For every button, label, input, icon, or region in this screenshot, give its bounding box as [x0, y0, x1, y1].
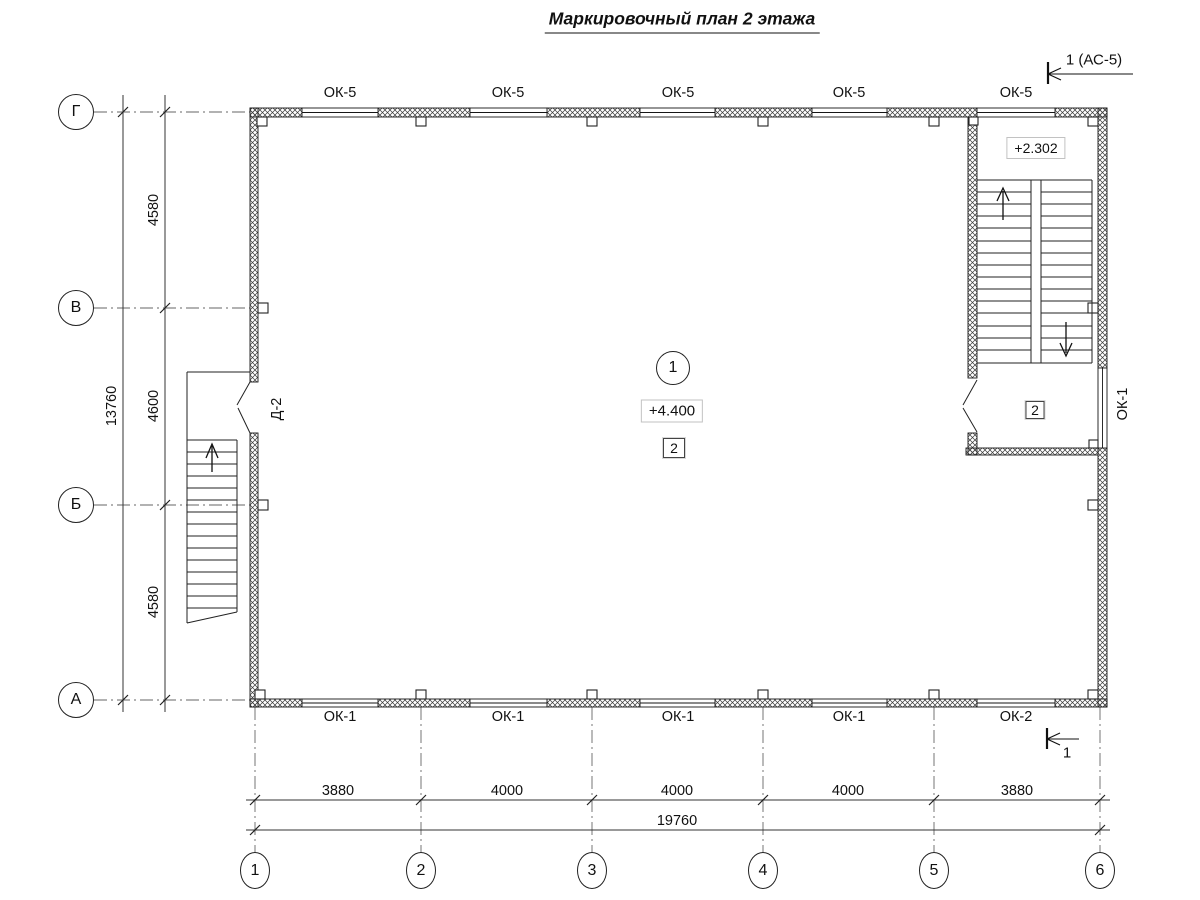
window-label-top-4: ОК-5	[833, 86, 866, 101]
section-label-bottom: 1	[1063, 746, 1071, 761]
axis-label: В	[71, 299, 82, 317]
dim-left-seg-1: 4580	[147, 194, 162, 226]
dim-left-total: 13760	[105, 386, 120, 426]
dim-bottom-seg-1: 3880	[322, 784, 354, 799]
axis-bubble-col-5: 5	[919, 852, 949, 889]
axis-bubble-row-a: А	[58, 682, 94, 718]
dim-bottom-seg-3: 4000	[661, 784, 693, 799]
axis-label: А	[71, 691, 82, 709]
axis-bubble-row-b: Б	[58, 487, 94, 523]
window-label-bottom-3: ОК-1	[662, 710, 695, 725]
room-number: 1	[669, 359, 678, 377]
section-label-top: 1 (АС-5)	[1066, 53, 1122, 68]
axis-label: 5	[930, 862, 939, 880]
window-label-top-1: ОК-5	[324, 86, 357, 101]
stairwell-door-swing	[963, 380, 977, 432]
room-level-mark: +4.400	[641, 400, 703, 423]
axis-bubble-col-4: 4	[748, 852, 778, 889]
axis-bubble-col-6: 6	[1085, 852, 1115, 889]
dim-bottom-total: 19760	[657, 814, 697, 829]
axis-label: 2	[417, 862, 426, 880]
room-number-bubble: 1	[656, 351, 690, 385]
window-label-right: ОК-1	[1116, 388, 1131, 421]
axis-label: 1	[251, 862, 260, 880]
axis-label: 3	[588, 862, 597, 880]
plan-drawing	[0, 0, 1200, 900]
floor-plan-canvas: Маркировочный план 2 этажа 1 (АС-5) 1 Г …	[0, 0, 1200, 900]
window-label-top-5: ОК-5	[1000, 86, 1033, 101]
stair-finish-mark: 2	[1026, 401, 1045, 419]
stair-direction-arrows-right	[997, 188, 1072, 356]
door-label: Д-2	[270, 398, 285, 421]
axis-bubble-col-2: 2	[406, 852, 436, 889]
entry-door-swing	[237, 382, 250, 433]
room-finish-mark: 2	[663, 438, 685, 458]
dim-bottom-seg-5: 3880	[1001, 784, 1033, 799]
axis-bubble-row-g: Г	[58, 94, 94, 130]
axis-bubble-col-3: 3	[577, 852, 607, 889]
window-label-top-3: ОК-5	[662, 86, 695, 101]
staircase-right	[977, 180, 1092, 363]
window-openings	[302, 108, 1107, 707]
axis-label: 4	[759, 862, 768, 880]
grid-axis-lines	[94, 112, 1100, 852]
axis-label: Б	[71, 496, 82, 514]
window-label-top-2: ОК-5	[492, 86, 525, 101]
dim-left-seg-3: 4580	[147, 586, 162, 618]
axis-label: 6	[1096, 862, 1105, 880]
stair-level-mark: +2.302	[1006, 137, 1065, 159]
window-label-bottom-1: ОК-1	[324, 710, 357, 725]
dimension-lines	[123, 95, 1110, 830]
stair-direction-arrow-left	[206, 444, 218, 472]
staircase-left	[187, 372, 250, 623]
drawing-title: Маркировочный план 2 этажа	[545, 9, 820, 34]
window-label-bottom-4: ОК-1	[833, 710, 866, 725]
window-label-bottom-2: ОК-1	[492, 710, 525, 725]
window-label-bottom-5: ОК-2	[1000, 710, 1033, 725]
axis-label: Г	[72, 103, 81, 121]
dim-bottom-seg-2: 4000	[491, 784, 523, 799]
axis-bubble-col-1: 1	[240, 852, 270, 889]
axis-bubble-row-v: В	[58, 290, 94, 326]
dim-left-seg-2: 4600	[147, 390, 162, 422]
dim-bottom-seg-4: 4000	[832, 784, 864, 799]
dimension-ticks	[118, 107, 1105, 835]
